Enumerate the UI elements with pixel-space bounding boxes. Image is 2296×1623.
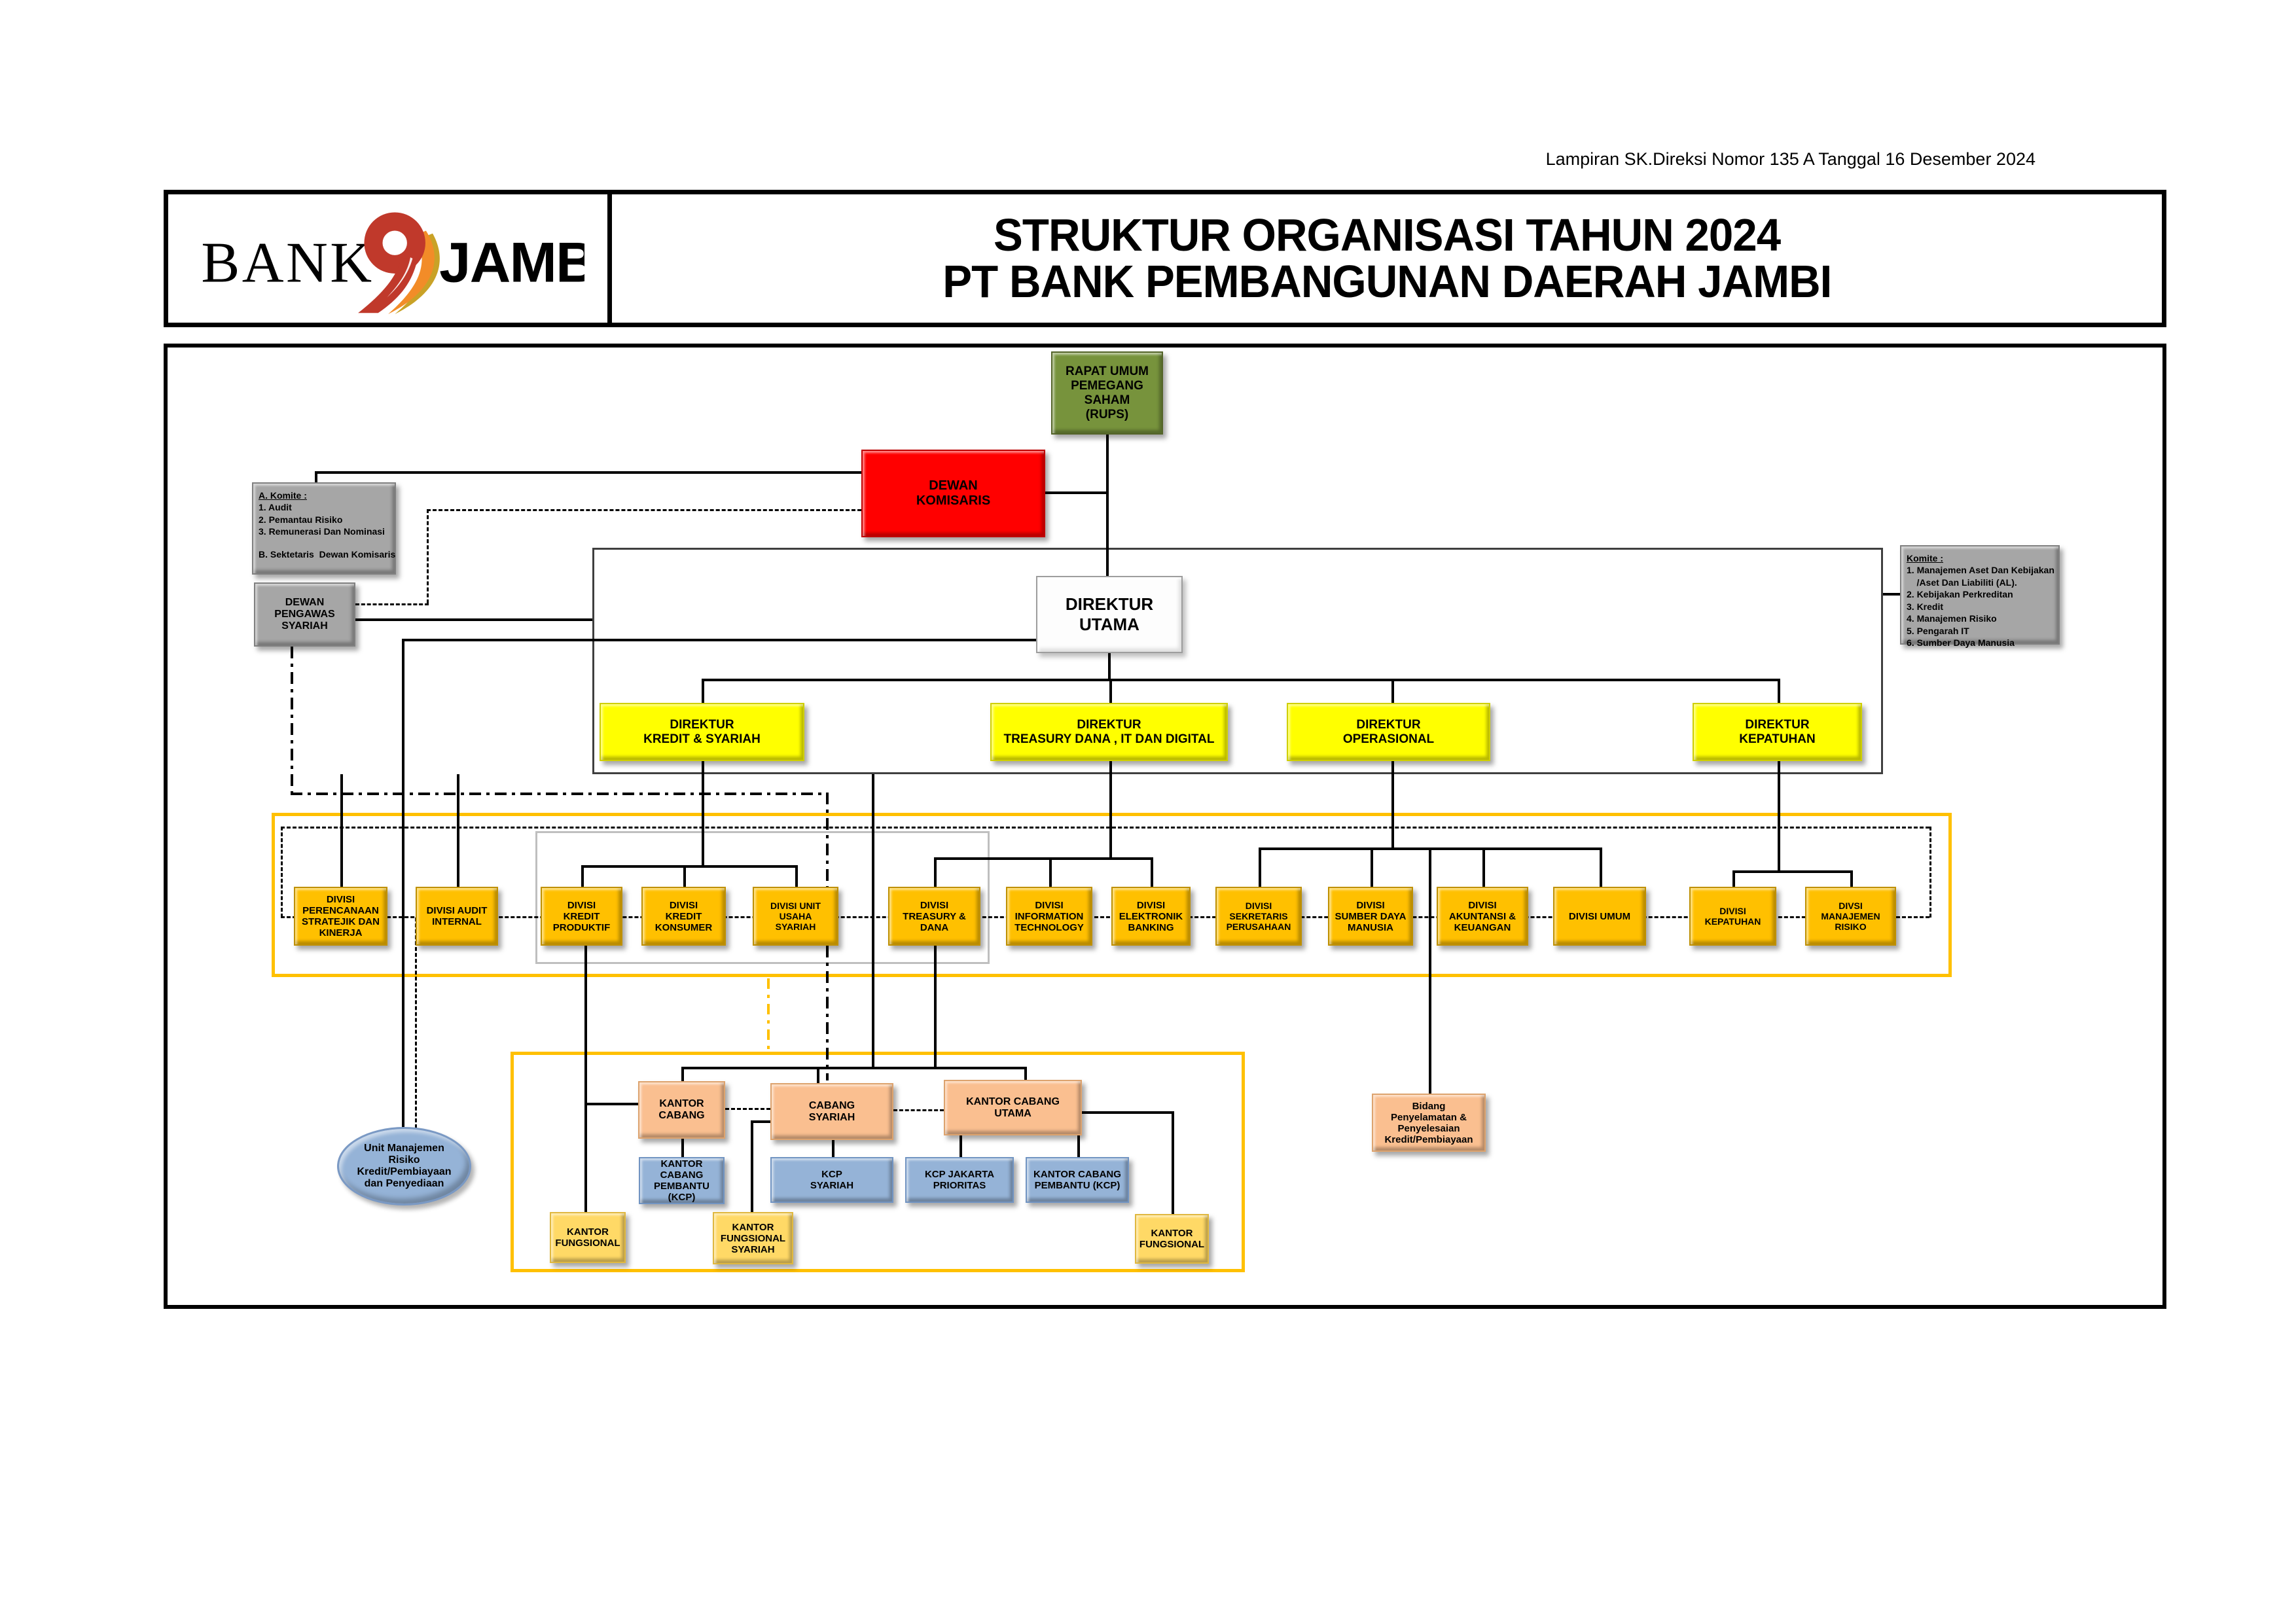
komite-a-footer: B. Sektetaris Dewan Komisaris [259, 548, 395, 560]
node-kcp-2: KANTOR CABANG PEMBANTU (KCP) [1026, 1157, 1129, 1203]
connector-drop-it [1049, 857, 1052, 887]
connector-dps-frame [355, 618, 592, 621]
node-komite-direksi: Komite : 1. Manajemen Aset Dan Kebijakan… [1900, 545, 2060, 645]
node-kantor-cabang-utama: KANTOR CABANG UTAMA [944, 1080, 1082, 1135]
connector-drop-treasurydana [934, 857, 937, 887]
dashed-komisaris-dps [427, 509, 861, 511]
node-rups: RAPAT UMUM PEMEGANG SAHAM (RUPS) [1051, 351, 1163, 435]
connector-kepatuhan-down [1778, 761, 1780, 870]
dashed-dps-link [355, 603, 429, 605]
komite-b-item-5: 5. Pengarah IT [1907, 625, 1969, 637]
connector-kf2-elbow [1082, 1111, 1174, 1114]
node-direktur-treasury: DIREKTUR TREASURY DANA , IT DAN DIGITAL [990, 703, 1228, 761]
connector-drop-manrisk [1850, 870, 1853, 887]
node-divisi-sekretaris-perusahaan: DIVISI SEKRETARIS PERUSAHAAN [1215, 887, 1302, 946]
node-divisi-akuntansi-keuangan: DIVISI AKUNTANSI & KEUANGAN [1437, 887, 1528, 946]
komite-a-item-2: 2. Pemantau Risiko [259, 514, 342, 526]
bank-jambi-logo-graphic: BANK JAMBI [192, 203, 584, 314]
node-divisi-kredit-konsumer: DIVISI KREDIT KONSUMER [641, 887, 726, 946]
node-kcp-jakarta-prioritas: KCP JAKARTA PRIORITAS [905, 1157, 1014, 1203]
connector-du-bus [1108, 653, 1111, 679]
dashed-divisi-right [1929, 827, 1931, 918]
connector-drop-sdm [1371, 847, 1373, 887]
connector-kredit-bus [581, 865, 797, 868]
connector-treasury-bus [934, 857, 1153, 860]
node-divisi-kepatuhan: DIVISI KEPATUHAN [1689, 887, 1776, 946]
connector-direktur-bus [702, 679, 1779, 681]
connector-kepatuhan-bus [1732, 870, 1853, 873]
connector-treasury-down [1109, 761, 1112, 857]
connector-drop-uus [795, 865, 798, 887]
dashed-cs-kcu [893, 1109, 944, 1111]
connector-drop-kcu [1024, 1067, 1027, 1080]
logo-jambi-text: JAMBI [439, 232, 584, 294]
node-kantor-fungsional-1: KANTOR FUNGSIONAL [550, 1212, 626, 1263]
komite-b-item-6: 6. Sumber Daya Manusia [1907, 637, 2015, 649]
node-divisi-umum: DIVISI UMUM [1553, 887, 1646, 946]
connector-frame-komite-b [1883, 593, 1901, 596]
dashed-divisi-top [281, 827, 1929, 829]
node-kcp-syariah: KCP SYARIAH [770, 1157, 893, 1203]
komite-b-item-4: 4. Manajemen Risiko [1907, 613, 1997, 624]
dashed-dps-riser [427, 509, 429, 603]
node-direktur-kredit-syariah: DIREKTUR KREDIT & SYARIAH [600, 703, 804, 761]
connector-drop-ebanking [1151, 857, 1153, 887]
node-direktur-operasional: DIREKTUR OPERASIONAL [1287, 703, 1490, 761]
node-kcp-1: KANTOR CABANG PEMBANTU (KCP) [639, 1157, 725, 1204]
connector-treasury-branch-drop [934, 946, 937, 1068]
node-divisi-treasury-dana: DIVISI TREASURY & DANA [888, 887, 980, 946]
page-title-line1: STRUKTUR ORGANISASI TAHUN 2024 [994, 212, 1780, 259]
node-direktur-utama: DIREKTUR UTAMA [1036, 576, 1183, 653]
node-unit-manajemen-risiko: Unit Manajemen Risiko Kredit/Pembiayaan … [337, 1127, 471, 1205]
node-divisi-manajemen-risiko: DIVSI MANAJEMEN RISIKO [1805, 887, 1896, 946]
connector-branch-feeder [872, 774, 874, 1068]
dashed-divisi-left [281, 827, 283, 918]
node-kantor-fungsional-syariah: KANTOR FUNGSIONAL SYARIAH [713, 1212, 793, 1264]
title-box: STRUKTUR ORGANISASI TAHUN 2024 PT BANK P… [612, 190, 2166, 327]
komite-a-heading: A. Komite : [259, 490, 307, 501]
node-direktur-kepatuhan: DIREKTUR KEPATUHAN [1693, 703, 1862, 761]
komite-b-item-2: 2. Kebijakan Perkreditan [1907, 588, 2013, 600]
connector-bidang-drop [1429, 847, 1431, 1094]
connector-drop-treasury [1109, 679, 1112, 703]
connector-operasional-down [1391, 761, 1394, 847]
node-divisi-elektronik-banking: DIVISI ELEKTRONIK BANKING [1111, 887, 1191, 946]
connector-kc-kcp1 [681, 1139, 684, 1157]
node-komite-dewan-komisaris: A. Komite : 1. Audit 2. Pemantau Risiko … [252, 482, 396, 575]
connector-branch-bus [681, 1067, 1027, 1069]
connector-du-left [402, 639, 1036, 641]
amber-dashed-link [767, 978, 770, 1054]
komite-a-item-3: 3. Remunerasi Dan Nominasi [259, 526, 385, 537]
connector-drop-sekretaris [1259, 847, 1261, 887]
connector-drop-umum [1600, 847, 1602, 887]
connector-kredit-down [702, 761, 704, 865]
page-title-line2: PT BANK PEMBANGUNAN DAERAH JAMBI [942, 259, 1831, 305]
connector-kf2-drop [1172, 1111, 1174, 1214]
node-dewan-pengawas-syariah: DEWAN PENGAWAS SYARIAH [254, 582, 355, 647]
connector-drop-akuntansi [1482, 847, 1485, 887]
connector-drop-kredit [702, 679, 704, 703]
connector-cs-kcps [832, 1140, 834, 1157]
connector-kcu-kcp2 [1077, 1135, 1080, 1157]
connector-drop-produktif [581, 865, 584, 887]
komite-b-item-1b: /Aset Dan Liabiliti (AL). [1907, 577, 2017, 588]
node-kantor-cabang: KANTOR CABANG [638, 1081, 725, 1139]
node-divisi-unit-usaha-syariah: DIVISI UNIT USAHA SYARIAH [753, 887, 838, 946]
dashed-divisi-chain [281, 916, 1929, 918]
connector-du-unit-risiko [402, 639, 404, 1128]
node-kantor-fungsional-2: KANTOR FUNGSIONAL [1135, 1214, 1209, 1264]
dashed-kc-cs [725, 1108, 770, 1110]
node-divisi-information-technology: DIVISI INFORMATION TECHNOLOGY [1006, 887, 1092, 946]
komite-a-item-1: 1. Audit [259, 501, 292, 513]
connector-drop-kc [681, 1067, 684, 1081]
node-divisi-audit-internal: DIVISI AUDIT INTERNAL [416, 887, 498, 946]
connector-kfs-drop [751, 1120, 753, 1212]
node-dewan-komisaris: DEWAN KOMISARIS [861, 450, 1045, 537]
connector-drop-audit [457, 774, 459, 887]
komite-b-heading: Komite : [1907, 552, 1943, 564]
page: Lampiran SK.Direksi Nomor 135 A Tanggal … [0, 0, 2296, 1623]
dashdot-dps-across [291, 793, 826, 795]
node-divisi-kredit-produktif: DIVISI KREDIT PRODUKTIF [541, 887, 622, 946]
komite-b-item-3: 3. Kredit [1907, 601, 1943, 613]
dashed-unit-risiko-drop [415, 918, 417, 1128]
node-bidang-penyelamatan: Bidang Penyelamatan & Penyelesaian Kredi… [1372, 1094, 1486, 1152]
connector-drop-konsumer [683, 865, 686, 887]
dashdot-dps-down [291, 647, 293, 794]
connector-kc-left [584, 1103, 639, 1105]
connector-rups-direktur-utama [1106, 435, 1109, 576]
connector-drop-operasional [1391, 679, 1394, 703]
connector-drop-perencanaan [340, 774, 343, 887]
connector-drop-kepatuhan [1778, 679, 1780, 703]
bank-jambi-logo: BANK JAMBI [164, 190, 612, 327]
komite-b-item-1: 1. Manajemen Aset Dan Kebijakan [1907, 564, 2054, 576]
node-divisi-perencanaan: DIVISI PERENCANAAN STRATEJIK DAN KINERJA [294, 887, 387, 946]
connector-drop-cs [817, 1067, 819, 1083]
connector-kcu-kcpjak [960, 1135, 962, 1157]
node-divisi-sumber-daya-manusia: DIVISI SUMBER DAYA MANUSIA [1328, 887, 1413, 946]
connector-kfs-elbow [751, 1120, 772, 1123]
connector-kf1-drop [584, 946, 587, 1212]
node-cabang-syariah: CABANG SYARIAH [770, 1083, 893, 1140]
connector-drop-div-kepatuhan [1732, 870, 1735, 887]
connector-komisaris-trunk [1045, 491, 1107, 494]
connector-komisaris-komite [315, 471, 861, 474]
logo-bank-text: BANK [201, 231, 374, 295]
lampiran-note: Lampiran SK.Direksi Nomor 135 A Tanggal … [1546, 149, 2036, 169]
header-bar: BANK JAMBI STRUKTUR ORGANISASI TAHUN 202… [164, 190, 2166, 327]
